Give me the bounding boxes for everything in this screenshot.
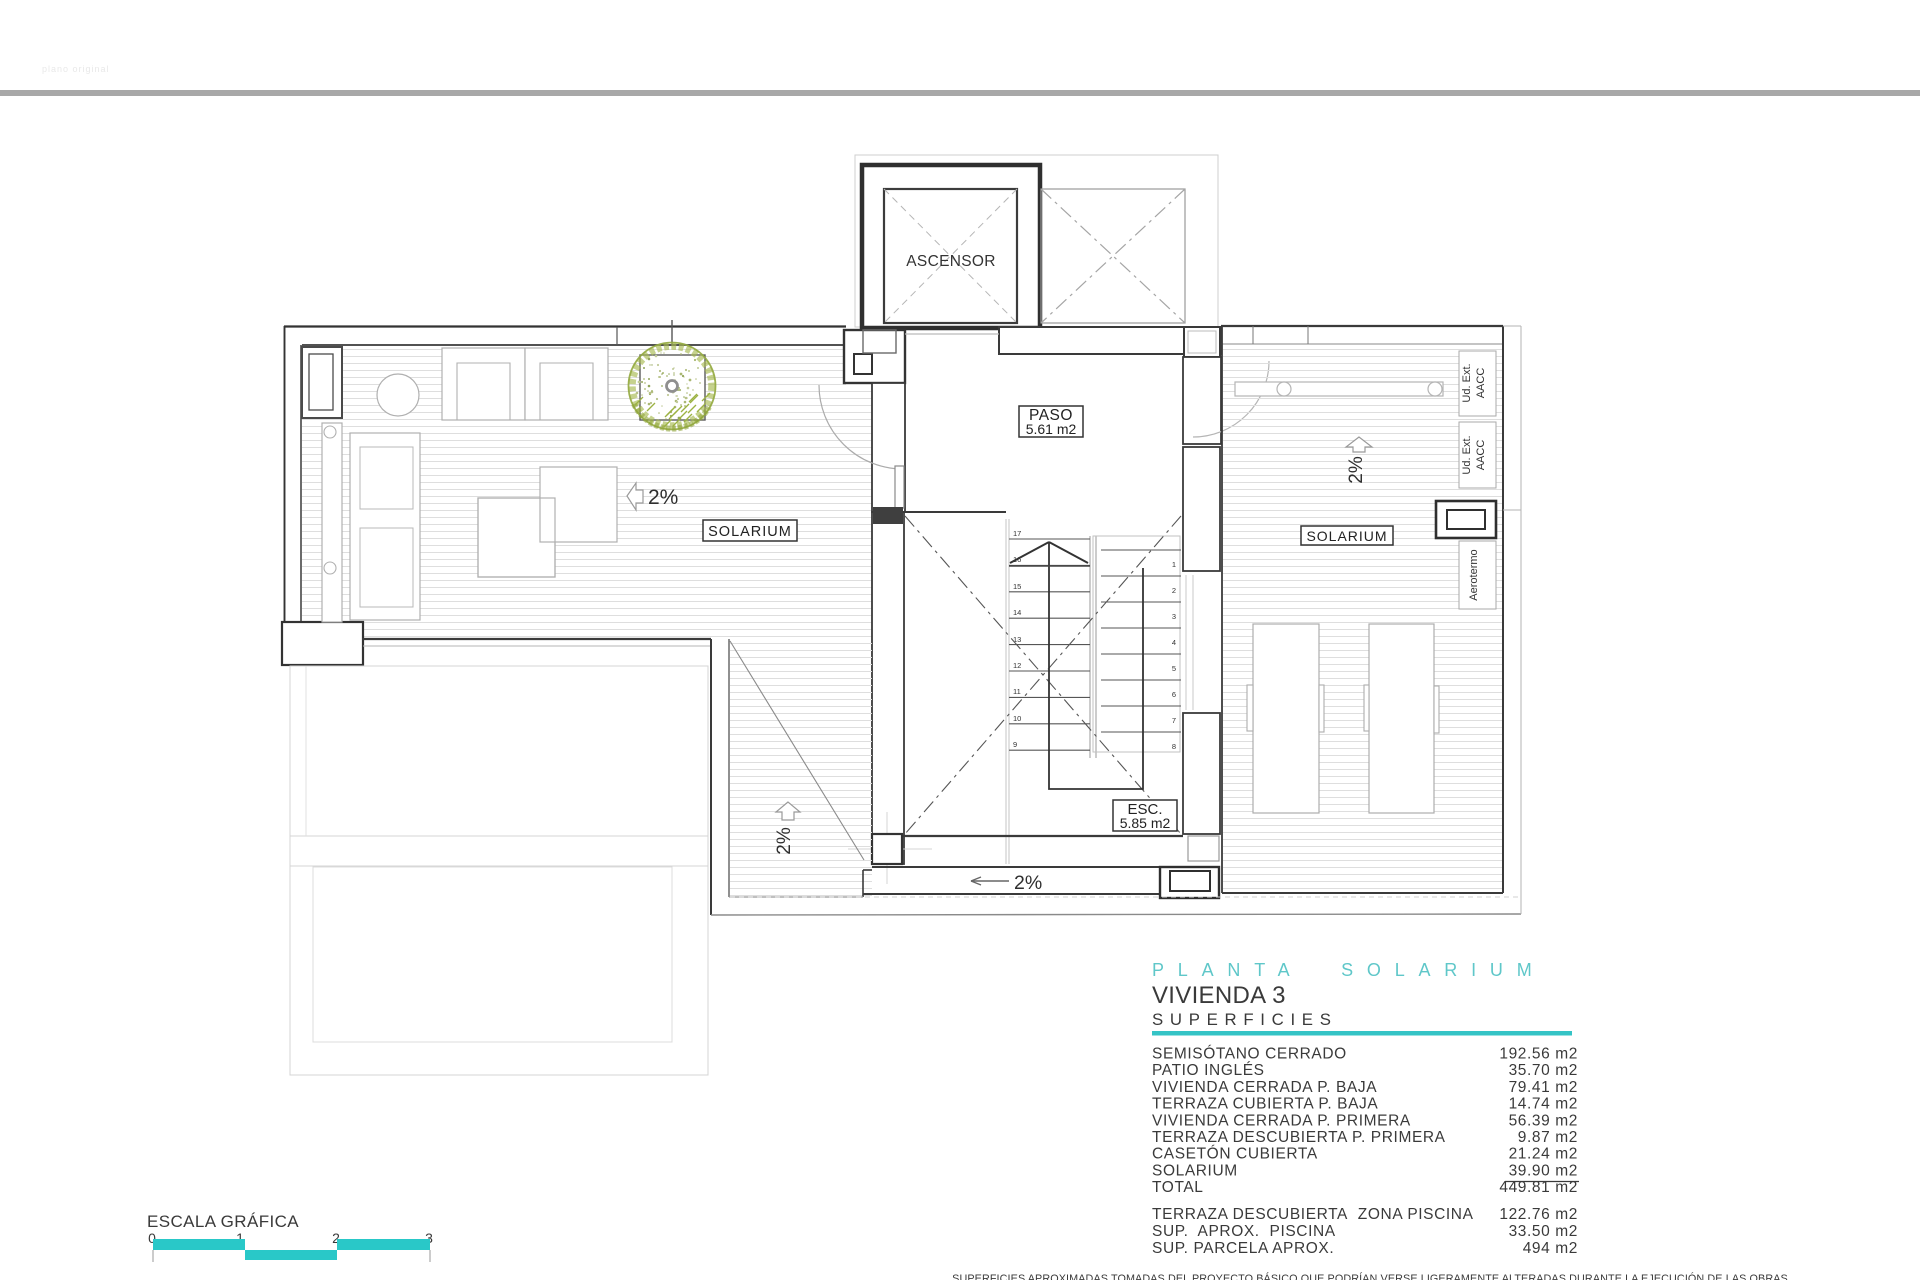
- svg-text:Ud. Ext.: Ud. Ext.: [1461, 435, 1473, 474]
- svg-text:12: 12: [1013, 661, 1021, 670]
- svg-text:VIVIENDA CERRADA P. BAJA: VIVIENDA CERRADA P. BAJA: [1152, 1079, 1377, 1096]
- svg-text:TERRAZA DESCUBIERTA ZONA PISC: TERRAZA DESCUBIERTA ZONA PISCINA: [1152, 1206, 1474, 1223]
- svg-text:SOLARIUM: SOLARIUM: [1306, 528, 1387, 544]
- svg-text:TERRAZA DESCUBIERTA P. PRIMERA: TERRAZA DESCUBIERTA P. PRIMERA: [1152, 1129, 1446, 1146]
- svg-text:5.85 m2: 5.85 m2: [1120, 815, 1171, 831]
- svg-text:SOLARIUM: SOLARIUM: [708, 524, 792, 540]
- svg-text:Aerotermo: Aerotermo: [1468, 549, 1480, 600]
- svg-text:192.56 m2: 192.56 m2: [1499, 1046, 1578, 1063]
- svg-text:PATIO INGLÉS: PATIO INGLÉS: [1152, 1062, 1265, 1079]
- svg-text:35.70 m2: 35.70 m2: [1509, 1062, 1578, 1079]
- svg-text:TERRAZA CUBIERTA P. BAJA: TERRAZA CUBIERTA P. BAJA: [1152, 1096, 1378, 1113]
- svg-text:AACC: AACC: [1475, 440, 1487, 471]
- svg-text:33.50 m2: 33.50 m2: [1509, 1223, 1578, 1240]
- svg-text:39.90 m2: 39.90 m2: [1509, 1162, 1578, 1179]
- svg-text:6: 6: [1172, 690, 1176, 699]
- svg-text:17: 17: [1013, 529, 1021, 538]
- svg-text:4: 4: [1172, 638, 1176, 647]
- svg-text:VIVIENDA 3: VIVIENDA 3: [1152, 982, 1286, 1009]
- svg-text:8: 8: [1172, 742, 1176, 751]
- svg-text:1: 1: [1172, 560, 1176, 569]
- svg-text:plano original: plano original: [42, 64, 110, 74]
- svg-text:14.74 m2: 14.74 m2: [1509, 1096, 1578, 1113]
- svg-text:5: 5: [1172, 664, 1176, 673]
- svg-text:SUPERFICIES APROXIMADAS TOMADA: SUPERFICIES APROXIMADAS TOMADAS DEL PROY…: [952, 1272, 1788, 1280]
- svg-text:15: 15: [1013, 582, 1021, 591]
- svg-text:Ud. Ext.: Ud. Ext.: [1461, 363, 1473, 402]
- svg-text:9: 9: [1013, 740, 1017, 749]
- svg-text:7: 7: [1172, 716, 1176, 725]
- svg-text:PLANTA SOLARIUM: PLANTA SOLARIUM: [1152, 960, 1546, 980]
- svg-text:SUP. APROX. PISCINA: SUP. APROX. PISCINA: [1152, 1223, 1336, 1240]
- svg-text:79.41 m2: 79.41 m2: [1509, 1079, 1578, 1096]
- svg-text:11: 11: [1013, 687, 1021, 696]
- svg-text:SUP. PARCELA APROX.: SUP. PARCELA APROX.: [1152, 1240, 1334, 1257]
- svg-text:2%: 2%: [1014, 872, 1042, 894]
- svg-text:14: 14: [1013, 608, 1021, 617]
- svg-text:CASETÓN CUBIERTA: CASETÓN CUBIERTA: [1152, 1146, 1318, 1163]
- svg-text:3: 3: [1172, 612, 1176, 621]
- svg-text:21.24 m2: 21.24 m2: [1509, 1146, 1578, 1163]
- svg-text:VIVIENDA CERRADA P. PRIMERA: VIVIENDA CERRADA P. PRIMERA: [1152, 1112, 1411, 1129]
- svg-text:56.39 m2: 56.39 m2: [1509, 1112, 1578, 1129]
- svg-text:SOLARIUM: SOLARIUM: [1152, 1162, 1238, 1179]
- svg-text:ESCALA GRÁFICA: ESCALA GRÁFICA: [147, 1212, 299, 1231]
- svg-text:2%: 2%: [1346, 456, 1367, 484]
- svg-text:ASCENSOR: ASCENSOR: [906, 253, 995, 270]
- svg-text:5.61 m2: 5.61 m2: [1026, 421, 1077, 437]
- svg-text:122.76 m2: 122.76 m2: [1499, 1206, 1578, 1223]
- svg-text:2: 2: [1172, 586, 1176, 595]
- svg-text:2%: 2%: [648, 486, 678, 509]
- svg-text:SUPERFICIES: SUPERFICIES: [1152, 1010, 1338, 1029]
- svg-text:9.87 m2: 9.87 m2: [1518, 1129, 1578, 1146]
- svg-text:TOTAL: TOTAL: [1152, 1179, 1204, 1196]
- svg-text:494 m2: 494 m2: [1523, 1240, 1578, 1257]
- svg-text:2%: 2%: [774, 827, 795, 855]
- svg-text:10: 10: [1013, 714, 1021, 723]
- svg-text:SEMISÓTANO CERRADO: SEMISÓTANO CERRADO: [1152, 1046, 1347, 1063]
- svg-text:AACC: AACC: [1475, 368, 1487, 399]
